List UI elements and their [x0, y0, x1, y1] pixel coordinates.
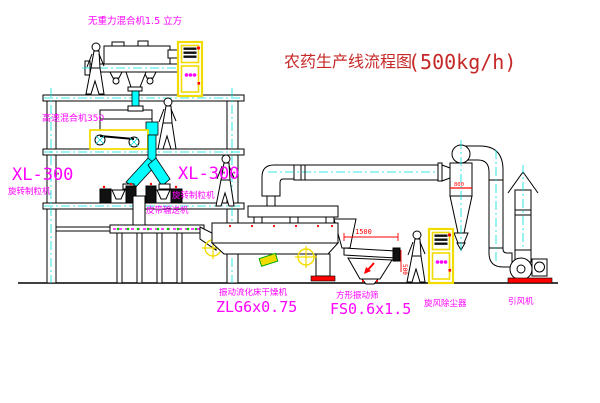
label-gravity-free-mixer: 无重力混合机1.5 立方	[88, 15, 182, 27]
cad-drawing-pesticide-line: 无重力混合机1.5 立方 高速混合机350 XL-300 旋转制粒机 XL-30…	[0, 0, 600, 403]
dryer-hood	[248, 206, 338, 217]
control-cabinet-top	[178, 42, 202, 96]
label-dryer-model: ZLG6x0.75	[216, 298, 297, 316]
control-cabinet-ground	[429, 229, 453, 283]
label-xl300-left: XL-300	[12, 165, 73, 185]
worker-ground	[407, 231, 425, 282]
worker-floor2	[158, 98, 176, 149]
dryer-bottom-outlet	[316, 254, 330, 276]
label-screen-model: FS0.6x1.5	[330, 300, 411, 318]
belt-conveyor	[56, 225, 204, 283]
label-high-speed-mixer: 高速混合机350	[42, 112, 104, 124]
label-dryer-name: 振动流化床干燥机	[219, 287, 288, 298]
dim-cyclone-dia: 800	[454, 182, 464, 188]
drawing-title: 农药生产线流程图	[284, 52, 412, 71]
induced-draft-fan	[508, 250, 552, 283]
label-fan-name: 引风机	[508, 296, 534, 307]
exhaust-duct	[294, 165, 440, 180]
label-xl300-right: XL-300	[178, 164, 239, 184]
label-granulator-right: 旋转制粒机	[172, 190, 215, 201]
dryer-exhaust-elbow	[262, 165, 294, 196]
label-belt-conveyor: 皮带输送机	[146, 205, 189, 216]
label-cyclone-name: 旋风除尘器	[424, 298, 467, 309]
dim-screen-side: 500	[401, 264, 408, 275]
mixer-outlet-cone	[126, 72, 146, 87]
label-granulator-left: 旋转制粒机	[8, 186, 51, 197]
vibrating-screen	[344, 233, 401, 284]
dim-screen-length: 1500	[355, 228, 372, 236]
name-plate	[259, 253, 278, 266]
flow-diagram-canvas: 无重力混合机1.5 立方 高速混合机350 XL-300 旋转制粒机 XL-30…	[0, 0, 600, 403]
granulator-discharge-chute	[133, 196, 145, 226]
drawing-title-capacity: (500kg/h)	[408, 50, 516, 74]
